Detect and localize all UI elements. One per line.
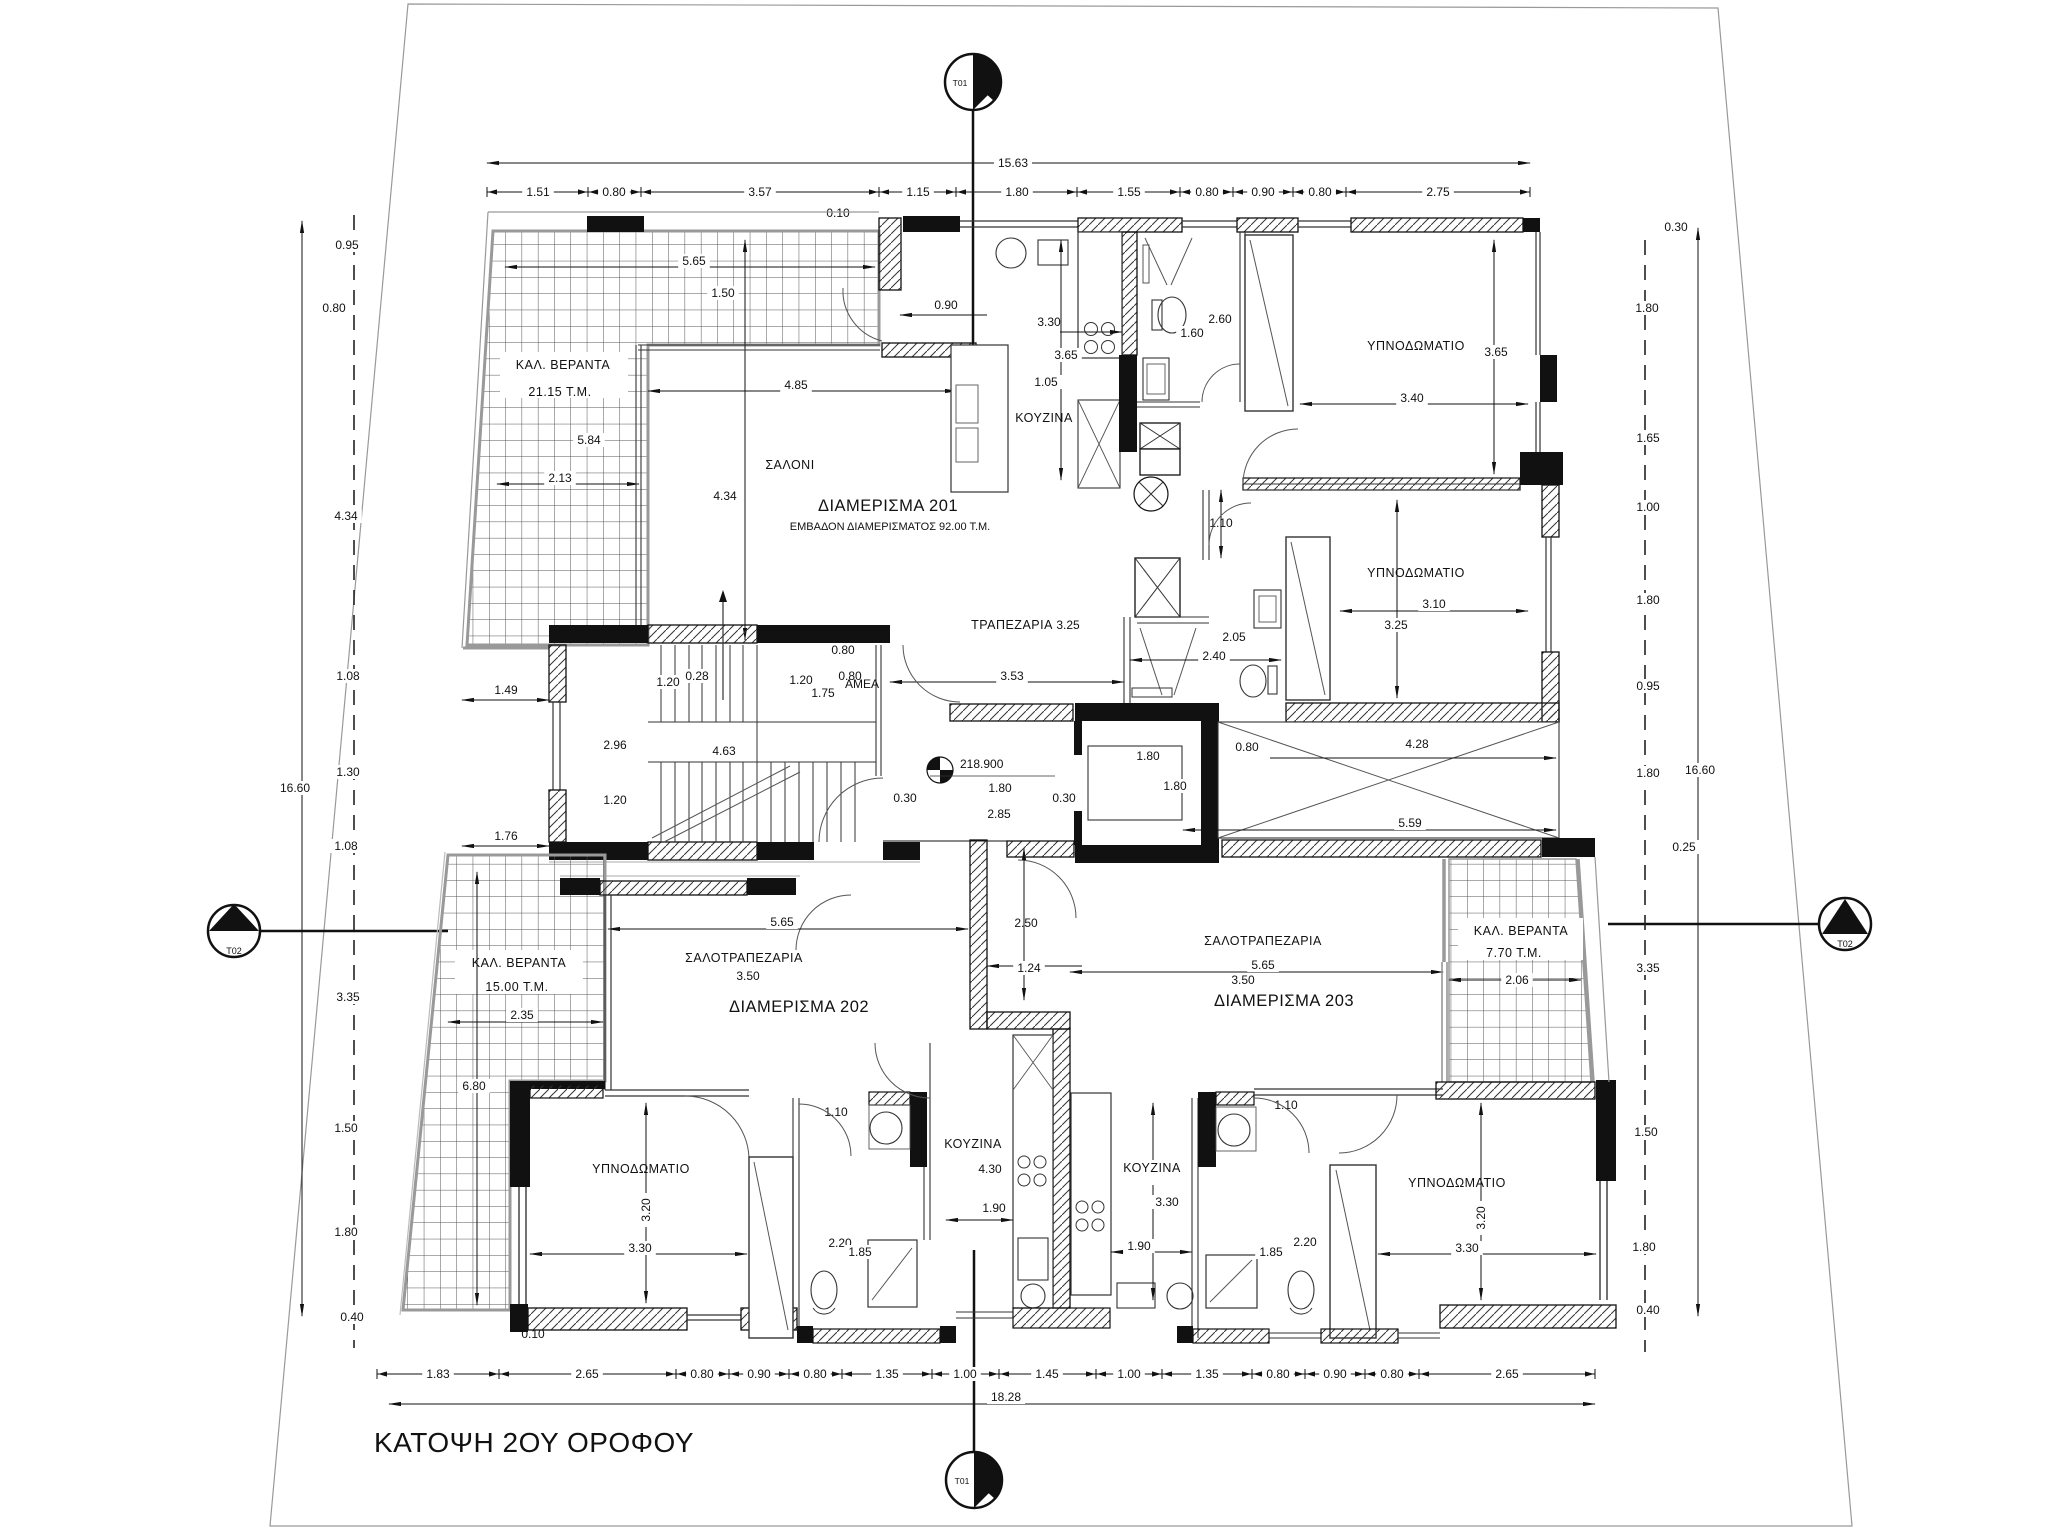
svg-text:1.45: 1.45 — [1035, 1367, 1059, 1381]
svg-text:ΣΑΛΟΤΡΑΠΕΖΑΡΙΑ: ΣΑΛΟΤΡΑΠΕΖΑΡΙΑ — [685, 951, 803, 965]
svg-text:2.40: 2.40 — [1202, 649, 1226, 663]
svg-text:2.65: 2.65 — [1495, 1367, 1519, 1381]
svg-text:1.80: 1.80 — [334, 1225, 358, 1239]
svg-text:0.40: 0.40 — [1636, 1303, 1660, 1317]
svg-text:1.50: 1.50 — [1634, 1125, 1658, 1139]
svg-text:0.80: 0.80 — [803, 1367, 827, 1381]
svg-text:1.51: 1.51 — [526, 185, 550, 199]
svg-text:4.28: 4.28 — [1405, 737, 1429, 751]
svg-text:ΥΠΝΟΔΩΜΑΤΙΟ: ΥΠΝΟΔΩΜΑΤΙΟ — [1408, 1176, 1506, 1190]
svg-text:0.95: 0.95 — [335, 238, 359, 252]
svg-text:ΚΑΛ. ΒΕΡΑΝΤΑ: ΚΑΛ. ΒΕΡΑΝΤΑ — [516, 358, 611, 372]
svg-text:16.60: 16.60 — [1685, 763, 1715, 777]
svg-text:3.25: 3.25 — [1384, 618, 1408, 632]
svg-text:0.80: 0.80 — [1308, 185, 1332, 199]
svg-text:1.05: 1.05 — [1034, 375, 1058, 389]
svg-text:1.80: 1.80 — [988, 781, 1012, 795]
svg-text:1.20: 1.20 — [603, 793, 627, 807]
svg-text:ΑΜΕΑ: ΑΜΕΑ — [845, 677, 879, 691]
svg-text:3.35: 3.35 — [1636, 961, 1660, 975]
svg-text:5.59: 5.59 — [1398, 816, 1422, 830]
svg-text:ΔΙΑΜΕΡΙΣΜΑ 201: ΔΙΑΜΕΡΙΣΜΑ 201 — [818, 497, 958, 515]
svg-text:1.15: 1.15 — [906, 185, 930, 199]
svg-text:3.65: 3.65 — [1484, 345, 1508, 359]
svg-text:ΣΑΛΟΝΙ: ΣΑΛΟΝΙ — [765, 458, 814, 472]
svg-text:4.34: 4.34 — [713, 489, 737, 503]
svg-text:1.85: 1.85 — [1259, 1245, 1283, 1259]
svg-text:1.49: 1.49 — [494, 683, 518, 697]
svg-text:0.25: 0.25 — [1672, 840, 1696, 854]
svg-text:1.75: 1.75 — [811, 686, 835, 700]
svg-text:1.20: 1.20 — [789, 673, 813, 687]
svg-text:ΥΠΝΟΔΩΜΑΤΙΟ: ΥΠΝΟΔΩΜΑΤΙΟ — [1367, 339, 1465, 353]
svg-text:6.80: 6.80 — [462, 1079, 486, 1093]
svg-text:ΤΡΑΠΕΖΑΡΙΑ: ΤΡΑΠΕΖΑΡΙΑ — [971, 618, 1053, 632]
svg-text:5.84: 5.84 — [577, 433, 601, 447]
svg-text:3.50: 3.50 — [1231, 973, 1255, 987]
svg-text:2.60: 2.60 — [1208, 312, 1232, 326]
svg-text:ΚΟΥΖΙΝΑ: ΚΟΥΖΙΝΑ — [944, 1137, 1002, 1151]
svg-text:1.80: 1.80 — [1636, 766, 1660, 780]
svg-text:4.34: 4.34 — [334, 509, 358, 523]
svg-text:7.70 Τ.Μ.: 7.70 Τ.Μ. — [1486, 946, 1542, 960]
svg-text:1.00: 1.00 — [1636, 500, 1660, 514]
svg-text:3.53: 3.53 — [1000, 669, 1024, 683]
svg-text:0.80: 0.80 — [1380, 1367, 1404, 1381]
svg-text:ΔΙΑΜΕΡΙΣΜΑ 202: ΔΙΑΜΕΡΙΣΜΑ 202 — [729, 998, 869, 1016]
svg-text:0.95: 0.95 — [1636, 679, 1660, 693]
svg-text:ΥΠΝΟΔΩΜΑΤΙΟ: ΥΠΝΟΔΩΜΑΤΙΟ — [592, 1162, 690, 1176]
svg-text:3.40: 3.40 — [1400, 391, 1424, 405]
svg-text:ΕΜΒΑΔΟΝ ΔΙΑΜΕΡΙΣΜΑΤΟΣ 92.00 Τ.: ΕΜΒΑΔΟΝ ΔΙΑΜΕΡΙΣΜΑΤΟΣ 92.00 Τ.Μ. — [790, 521, 990, 533]
svg-text:T02: T02 — [226, 946, 242, 956]
svg-text:15.63: 15.63 — [998, 156, 1028, 170]
svg-text:1.35: 1.35 — [1195, 1367, 1219, 1381]
svg-text:ΥΠΝΟΔΩΜΑΤΙΟ: ΥΠΝΟΔΩΜΑΤΙΟ — [1367, 566, 1465, 580]
svg-text:218.900: 218.900 — [960, 757, 1004, 771]
svg-text:1.80: 1.80 — [1163, 779, 1187, 793]
svg-text:3.20: 3.20 — [1474, 1206, 1488, 1230]
svg-text:0.80: 0.80 — [602, 185, 626, 199]
svg-text:5.65: 5.65 — [1251, 958, 1275, 972]
svg-text:T01: T01 — [953, 78, 968, 88]
svg-text:1.80: 1.80 — [1636, 593, 1660, 607]
svg-text:0.80: 0.80 — [690, 1367, 714, 1381]
svg-text:2.75: 2.75 — [1426, 185, 1450, 199]
svg-text:2.85: 2.85 — [987, 807, 1011, 821]
svg-text:T01: T01 — [955, 1476, 970, 1486]
svg-text:2.06: 2.06 — [1505, 973, 1529, 987]
svg-text:1.08: 1.08 — [336, 669, 360, 683]
svg-text:5.65: 5.65 — [682, 254, 706, 268]
svg-text:ΚΑΤΟΨΗ 2ΟΥ ΟΡΟΦΟΥ: ΚΑΤΟΨΗ 2ΟΥ ΟΡΟΦΟΥ — [374, 1427, 694, 1458]
svg-text:3.30: 3.30 — [1155, 1195, 1179, 1209]
svg-text:4.30: 4.30 — [978, 1162, 1002, 1176]
svg-text:0.28: 0.28 — [685, 669, 709, 683]
svg-text:ΚΑΛ. ΒΕΡΑΝΤΑ: ΚΑΛ. ΒΕΡΑΝΤΑ — [472, 956, 567, 970]
svg-text:1.50: 1.50 — [711, 286, 735, 300]
svg-text:18.28: 18.28 — [991, 1390, 1021, 1404]
svg-text:5.65: 5.65 — [770, 915, 794, 929]
svg-text:1.00: 1.00 — [953, 1367, 977, 1381]
svg-text:2.13: 2.13 — [548, 471, 572, 485]
svg-text:3.30: 3.30 — [628, 1241, 652, 1255]
svg-text:1.00: 1.00 — [1117, 1367, 1141, 1381]
svg-text:1.80: 1.80 — [1632, 1240, 1656, 1254]
svg-text:0.90: 0.90 — [747, 1367, 771, 1381]
svg-text:T02: T02 — [1837, 939, 1853, 949]
svg-text:3.57: 3.57 — [748, 185, 772, 199]
svg-text:3.30: 3.30 — [1037, 315, 1061, 329]
svg-text:1.60: 1.60 — [1180, 326, 1204, 340]
svg-text:3.25: 3.25 — [1056, 618, 1080, 632]
svg-text:ΣΑΛΟΤΡΑΠΕΖΑΡΙΑ: ΣΑΛΟΤΡΑΠΕΖΑΡΙΑ — [1204, 934, 1322, 948]
svg-text:2.20: 2.20 — [1293, 1235, 1317, 1249]
svg-text:ΚΑΛ. ΒΕΡΑΝΤΑ: ΚΑΛ. ΒΕΡΑΝΤΑ — [1474, 924, 1569, 938]
svg-text:0.80: 0.80 — [322, 301, 346, 315]
svg-text:0.80: 0.80 — [1235, 740, 1259, 754]
svg-text:1.65: 1.65 — [1636, 431, 1660, 445]
svg-text:1.20: 1.20 — [656, 675, 680, 689]
svg-text:1.35: 1.35 — [875, 1367, 899, 1381]
svg-text:ΚΟΥΖΙΝΑ: ΚΟΥΖΙΝΑ — [1015, 411, 1073, 425]
svg-text:3.20: 3.20 — [639, 1198, 653, 1222]
svg-text:ΚΟΥΖΙΝΑ: ΚΟΥΖΙΝΑ — [1123, 1161, 1181, 1175]
svg-text:1.30: 1.30 — [336, 765, 360, 779]
svg-text:1.83: 1.83 — [426, 1367, 450, 1381]
svg-text:ΔΙΑΜΕΡΙΣΜΑ 203: ΔΙΑΜΕΡΙΣΜΑ 203 — [1214, 992, 1354, 1010]
svg-text:2.05: 2.05 — [1222, 630, 1246, 644]
svg-text:3.35: 3.35 — [336, 990, 360, 1004]
svg-text:1.08: 1.08 — [334, 839, 358, 853]
svg-text:3.65: 3.65 — [1054, 348, 1078, 362]
svg-text:21.15 Τ.Μ.: 21.15 Τ.Μ. — [528, 385, 591, 399]
svg-text:1.10: 1.10 — [1274, 1098, 1298, 1112]
svg-text:1.10: 1.10 — [824, 1105, 848, 1119]
svg-text:0.90: 0.90 — [1323, 1367, 1347, 1381]
svg-text:1.55: 1.55 — [1117, 185, 1141, 199]
svg-text:4.85: 4.85 — [784, 378, 808, 392]
svg-text:2.35: 2.35 — [510, 1008, 534, 1022]
svg-text:1.80: 1.80 — [1136, 749, 1160, 763]
svg-text:1.90: 1.90 — [1127, 1239, 1151, 1253]
svg-text:0.30: 0.30 — [1664, 220, 1688, 234]
svg-text:2.50: 2.50 — [1014, 916, 1038, 930]
svg-text:3.50: 3.50 — [736, 969, 760, 983]
svg-text:0.80: 0.80 — [1195, 185, 1219, 199]
svg-text:16.60: 16.60 — [280, 781, 310, 795]
svg-text:1.90: 1.90 — [982, 1201, 1006, 1215]
svg-text:2.65: 2.65 — [575, 1367, 599, 1381]
svg-text:2.96: 2.96 — [603, 738, 627, 752]
svg-text:1.50: 1.50 — [334, 1121, 358, 1135]
svg-text:3.10: 3.10 — [1422, 597, 1446, 611]
svg-text:1.80: 1.80 — [1005, 185, 1029, 199]
svg-text:0.90: 0.90 — [1251, 185, 1275, 199]
svg-text:0.30: 0.30 — [893, 791, 917, 805]
svg-text:0.40: 0.40 — [340, 1310, 364, 1324]
svg-text:0.90: 0.90 — [934, 298, 958, 312]
svg-text:1.24: 1.24 — [1017, 961, 1041, 975]
svg-text:0.80: 0.80 — [831, 643, 855, 657]
svg-text:0.80: 0.80 — [1266, 1367, 1290, 1381]
svg-text:4.63: 4.63 — [712, 744, 736, 758]
svg-text:3.30: 3.30 — [1455, 1241, 1479, 1255]
svg-text:0.10: 0.10 — [826, 206, 850, 220]
svg-text:15.00 Τ.Μ.: 15.00 Τ.Μ. — [485, 980, 548, 994]
svg-text:1.80: 1.80 — [1635, 301, 1659, 315]
svg-text:1.76: 1.76 — [494, 829, 518, 843]
svg-text:0.30: 0.30 — [1052, 791, 1076, 805]
svg-text:1.85: 1.85 — [848, 1245, 872, 1259]
